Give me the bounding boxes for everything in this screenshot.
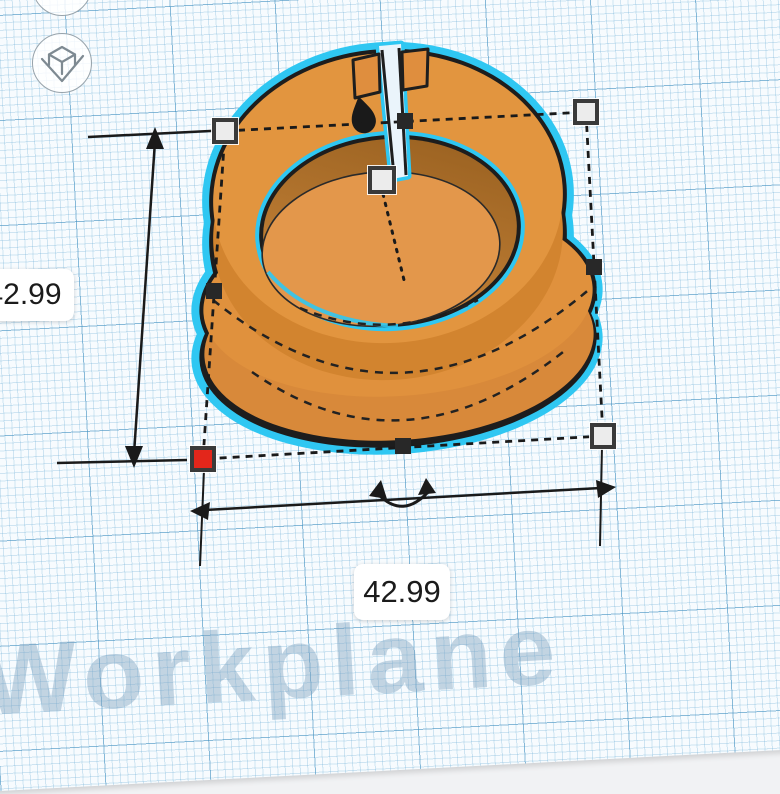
scale-handle-left-mid[interactable] xyxy=(206,283,222,299)
3d-viewport[interactable]: Workplane xyxy=(0,0,780,794)
rotate-handle[interactable] xyxy=(369,478,436,506)
scale-handle-bottom-left-active[interactable] xyxy=(189,445,217,473)
height-dimension-input[interactable]: 42.99 xyxy=(0,269,74,321)
height-handle-top[interactable] xyxy=(367,165,397,195)
scale-handle-bottom-mid[interactable] xyxy=(395,438,411,454)
width-dimension-input[interactable]: 42.99 xyxy=(354,564,450,620)
scale-handle-top-left[interactable] xyxy=(211,117,239,145)
scale-handle-top-mid[interactable] xyxy=(397,113,413,129)
home-view-button[interactable] xyxy=(32,33,92,93)
scale-handle-right-mid[interactable] xyxy=(586,259,602,275)
home-view-icon xyxy=(36,37,88,89)
scale-handle-top-right[interactable] xyxy=(572,98,600,126)
model-canvas[interactable] xyxy=(0,0,780,794)
scale-handle-bottom-right[interactable] xyxy=(589,422,617,450)
